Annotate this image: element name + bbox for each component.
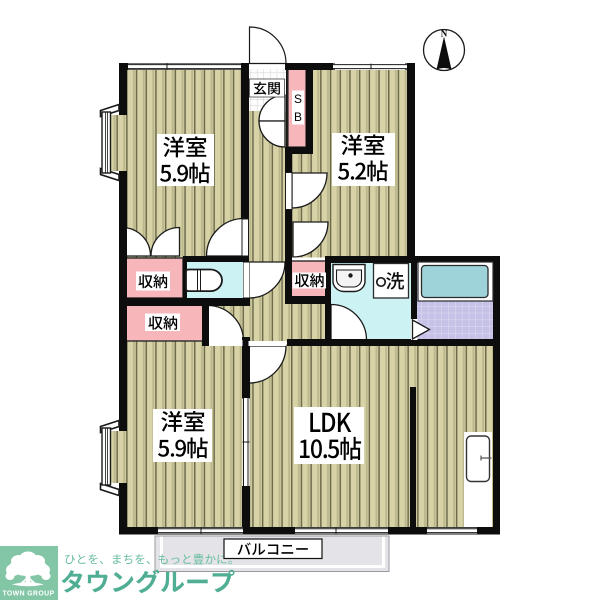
svg-text:S: S: [294, 92, 302, 106]
svg-text:N: N: [441, 29, 448, 39]
svg-text:B: B: [294, 110, 302, 124]
svg-text:TOWN GROUP: TOWN GROUP: [2, 591, 54, 598]
